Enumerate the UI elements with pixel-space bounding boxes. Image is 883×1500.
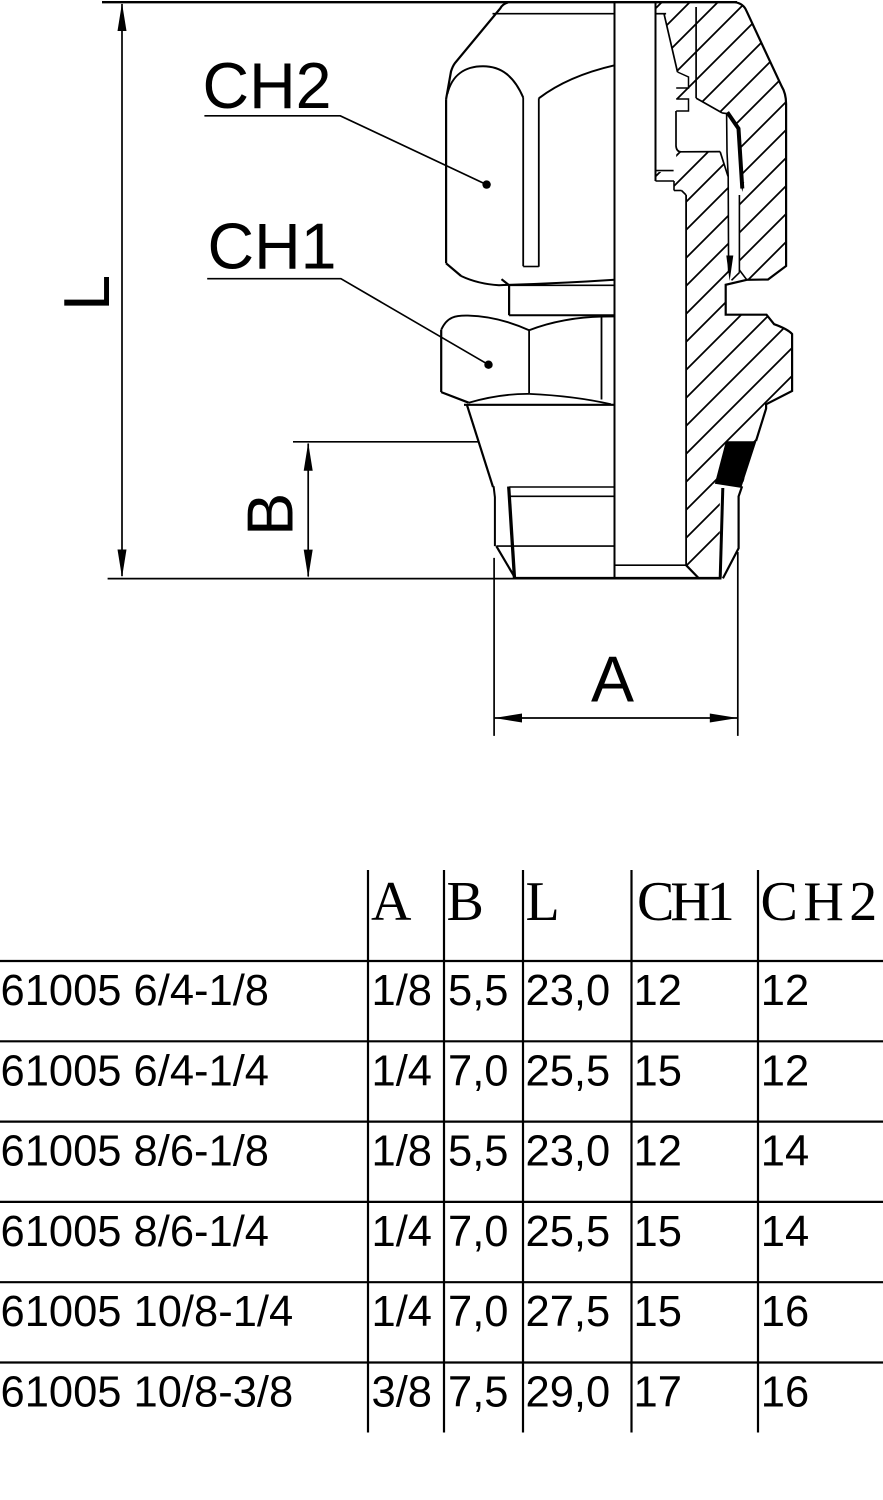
svg-text:15: 15	[634, 1208, 682, 1256]
svg-text:29,0: 29,0	[526, 1369, 611, 1417]
svg-text:L: L	[50, 275, 123, 311]
svg-text:B: B	[234, 493, 307, 536]
svg-text:7,0: 7,0	[448, 1288, 508, 1336]
svg-text:16: 16	[761, 1288, 809, 1336]
svg-text:61005 10/8-3/8: 61005 10/8-3/8	[1, 1369, 294, 1417]
svg-text:25,5: 25,5	[526, 1047, 611, 1095]
svg-text:61005 8/6-1/8: 61005 8/6-1/8	[1, 1128, 269, 1176]
svg-text:L: L	[526, 871, 560, 933]
svg-text:5,5: 5,5	[448, 967, 508, 1015]
svg-text:B: B	[447, 871, 484, 933]
svg-text:1/8: 1/8	[372, 967, 432, 1015]
svg-text:7,0: 7,0	[448, 1208, 508, 1256]
svg-text:7,0: 7,0	[448, 1047, 508, 1095]
svg-text:14: 14	[761, 1208, 809, 1256]
svg-text:CH2: CH2	[203, 50, 332, 122]
svg-text:1/4: 1/4	[372, 1208, 432, 1256]
svg-text:15: 15	[634, 1288, 682, 1336]
svg-text:23,0: 23,0	[526, 967, 611, 1015]
svg-text:61005 6/4-1/8: 61005 6/4-1/8	[1, 967, 269, 1015]
svg-text:5,5: 5,5	[448, 1128, 508, 1176]
svg-text:25,5: 25,5	[526, 1208, 611, 1256]
svg-text:12: 12	[634, 967, 682, 1015]
svg-text:15: 15	[634, 1047, 682, 1095]
svg-text:3/8: 3/8	[372, 1369, 432, 1417]
svg-text:61005 10/8-1/4: 61005 10/8-1/4	[1, 1288, 294, 1336]
svg-text:1/4: 1/4	[372, 1288, 432, 1336]
svg-text:1/4: 1/4	[372, 1047, 432, 1095]
svg-text:12: 12	[634, 1128, 682, 1176]
svg-text:14: 14	[761, 1128, 809, 1176]
svg-text:12: 12	[761, 1047, 809, 1095]
svg-text:CH2: CH2	[761, 871, 883, 933]
svg-text:12: 12	[761, 967, 809, 1015]
svg-text:27,5: 27,5	[526, 1288, 611, 1336]
svg-text:1/8: 1/8	[372, 1128, 432, 1176]
svg-text:CH1: CH1	[637, 871, 732, 933]
svg-text:A: A	[371, 871, 412, 933]
svg-text:CH1: CH1	[208, 210, 337, 282]
svg-text:16: 16	[761, 1369, 809, 1417]
svg-text:A: A	[591, 644, 634, 716]
svg-text:61005 8/6-1/4: 61005 8/6-1/4	[1, 1208, 269, 1256]
svg-text:61005 6/4-1/4: 61005 6/4-1/4	[1, 1047, 269, 1095]
svg-text:23,0: 23,0	[526, 1128, 611, 1176]
svg-text:7,5: 7,5	[448, 1369, 508, 1417]
svg-text:17: 17	[634, 1369, 682, 1417]
